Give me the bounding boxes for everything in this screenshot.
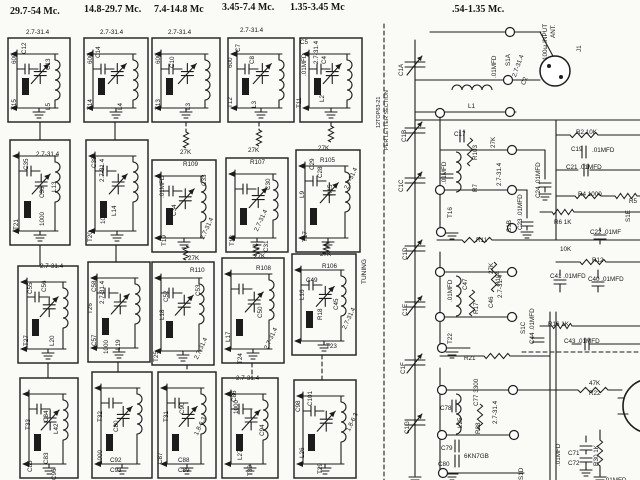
schematic-scan: 29.7-54 Mc.14.8-29.7 Mc.7.4-14.8 Mc3.45-… (0, 0, 640, 480)
schematic-linework (0, 0, 640, 480)
